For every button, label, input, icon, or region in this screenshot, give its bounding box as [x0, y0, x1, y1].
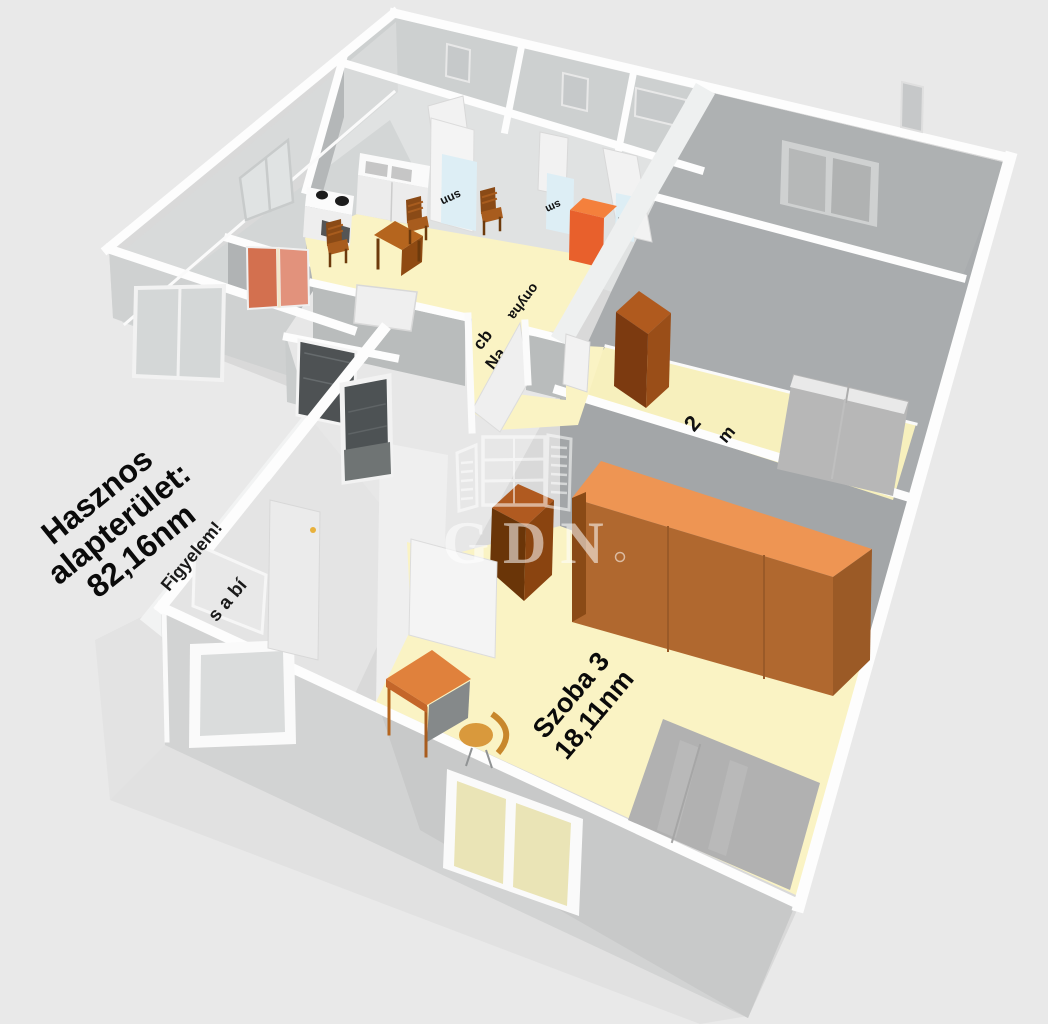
svg-text:GDN: GDN	[442, 510, 617, 576]
